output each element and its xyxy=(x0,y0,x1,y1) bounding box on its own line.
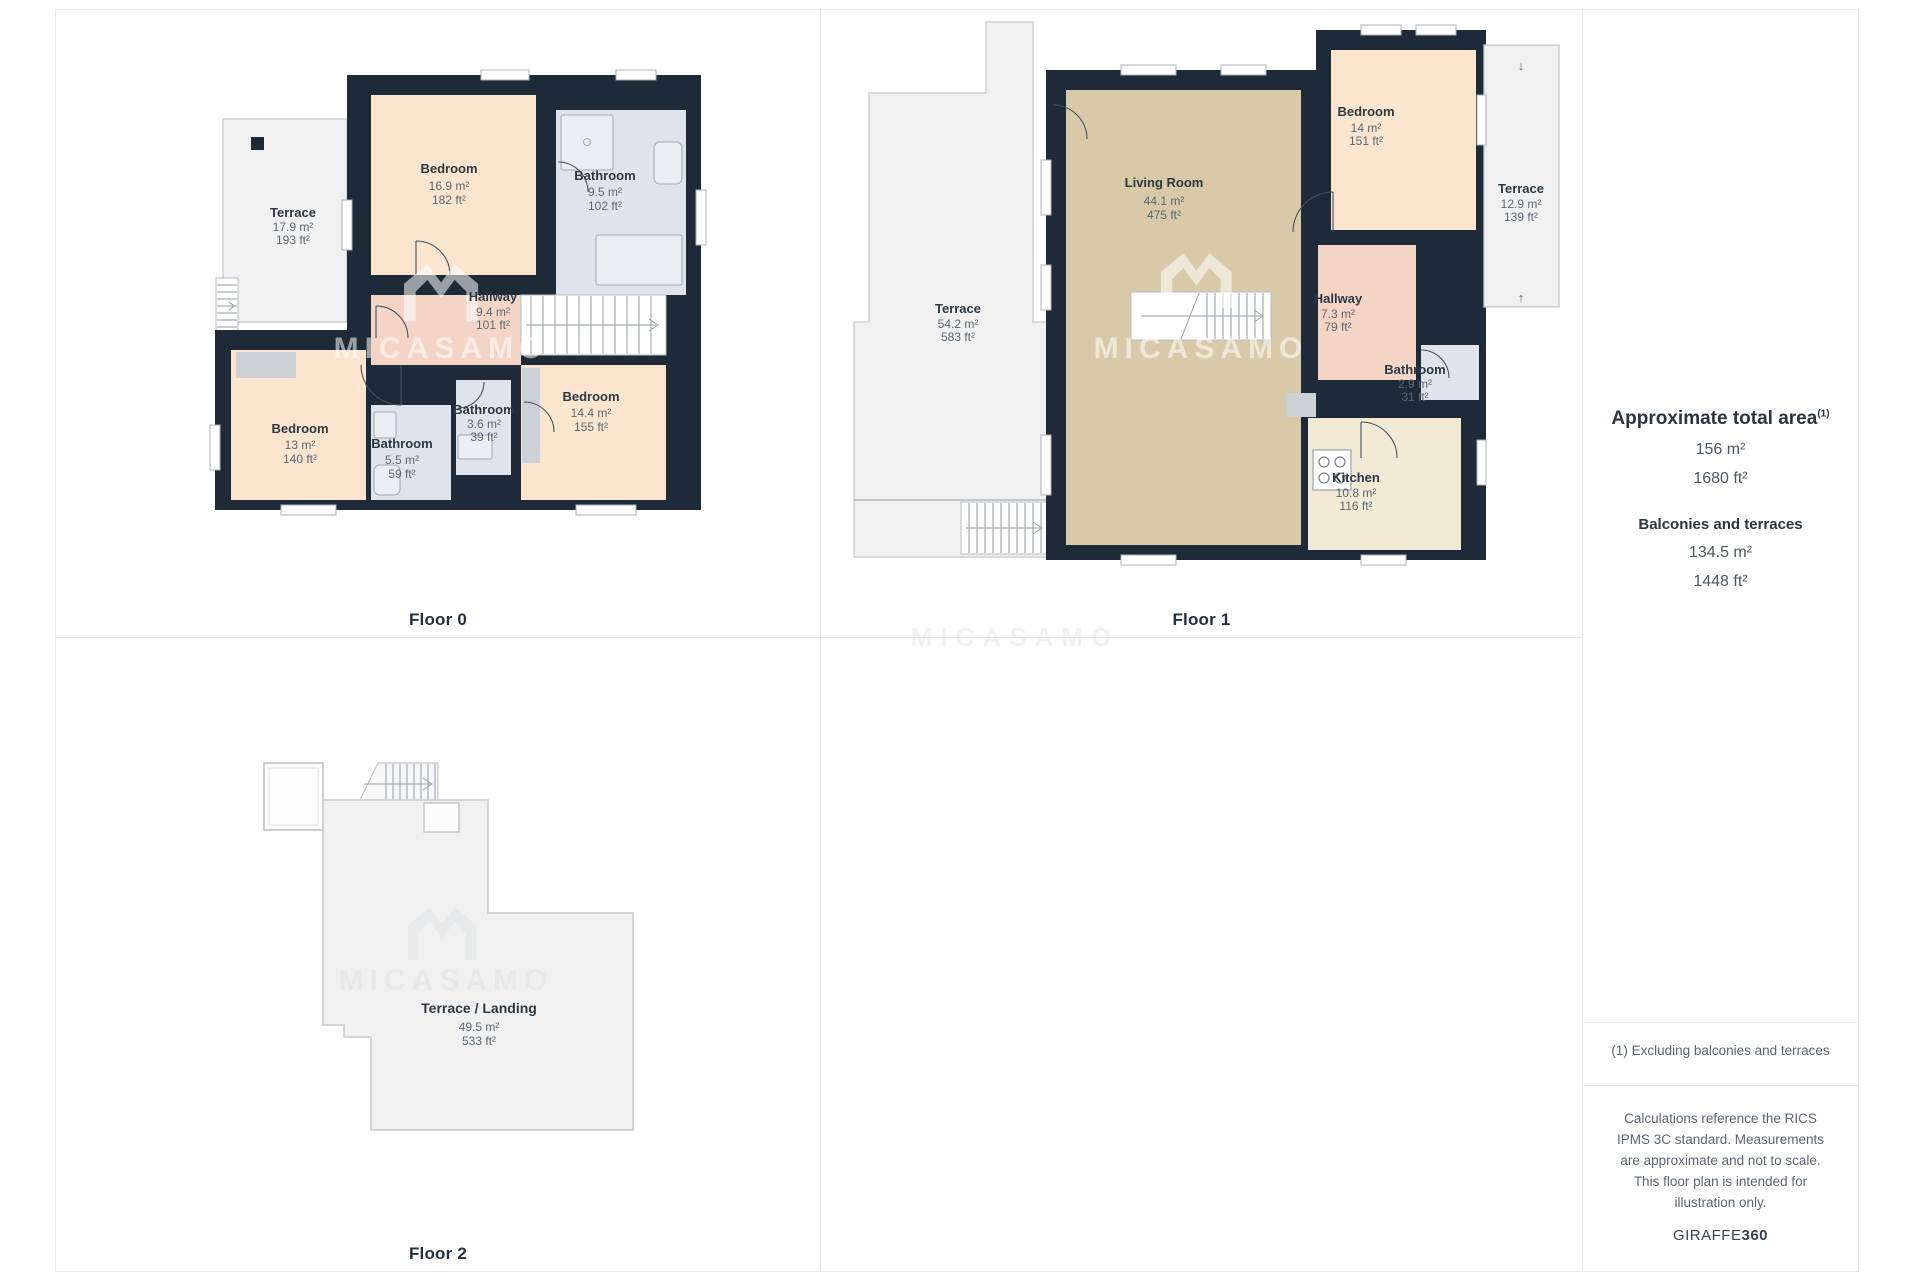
room-name: Bathroom xyxy=(371,436,432,451)
arrow-up-icon: ↑ xyxy=(1518,290,1525,305)
room-name: Bedroom xyxy=(271,421,328,436)
room-area: 10.8 m² xyxy=(1336,486,1377,500)
room-area: 182 ft² xyxy=(432,193,466,207)
room-area: 583 ft² xyxy=(941,330,975,344)
room-area: 151 ft² xyxy=(1349,134,1383,148)
window xyxy=(1041,435,1051,495)
room-area: 533 ft² xyxy=(462,1034,496,1048)
total-area-superscript: (1) xyxy=(1817,409,1829,420)
room-area: 17.9 m² xyxy=(273,220,314,234)
room-name: Bathroom xyxy=(453,402,514,417)
arrow-down-icon: ↓ xyxy=(1518,58,1525,73)
room-name: Bathroom xyxy=(574,168,635,183)
room-area: 39 ft² xyxy=(470,430,497,444)
watermark-text: MICASAMO xyxy=(1094,332,1309,365)
floor1-cell: ↓ ↑ xyxy=(821,10,1582,637)
total-area-m2: 156 m² xyxy=(1583,441,1858,459)
summary-sidebar: Approximate total area(1) 156 m² 1680 ft… xyxy=(1583,10,1858,1271)
footnote: (1) Excluding balconies and terraces xyxy=(1583,1043,1858,1058)
sidebar-divider-2 xyxy=(1583,1085,1858,1086)
floorplan-sheet: MICASAMO xyxy=(0,0,1920,1280)
window xyxy=(576,505,636,515)
room-area: 2.9 m² xyxy=(1398,377,1432,391)
room-area: 101 ft² xyxy=(476,318,510,332)
room-area: 3.6 m² xyxy=(467,417,501,431)
room-area: 14 m² xyxy=(1351,121,1382,135)
closet xyxy=(236,352,296,378)
room-area: 79 ft² xyxy=(1324,320,1351,334)
window xyxy=(481,70,529,80)
room-area: 31 ft² xyxy=(1401,390,1428,404)
watermark-text: MICASAMO xyxy=(334,332,549,365)
room-area: 102 ft² xyxy=(588,199,622,213)
room-area: 13 m² xyxy=(285,438,316,452)
terrace-post xyxy=(251,137,264,150)
balconies-ft2: 1448 ft² xyxy=(1583,573,1858,591)
room-area: 116 ft² xyxy=(1339,499,1372,513)
floor2-cell: MICASAMO Terrace / Landing 49.5 m² 533 f… xyxy=(56,638,820,1271)
total-area-block: Approximate total area(1) 156 m² 1680 ft… xyxy=(1583,408,1858,591)
giraffe-360-text: 360 xyxy=(1741,1227,1768,1244)
window xyxy=(616,70,656,80)
window xyxy=(1477,440,1486,485)
room-name: Bathroom xyxy=(1384,362,1445,377)
room-area: 9.5 m² xyxy=(588,185,622,199)
room-area: 475 ft² xyxy=(1147,208,1181,222)
floor1-terrace-large xyxy=(854,22,1061,557)
window xyxy=(1416,25,1456,35)
room-area: 7.3 m² xyxy=(1321,307,1355,321)
window xyxy=(210,425,220,470)
room-area: 59 ft² xyxy=(388,467,415,481)
room-area: 140 ft² xyxy=(283,452,317,466)
total-area-title: Approximate total area(1) xyxy=(1583,408,1858,430)
window xyxy=(281,505,336,515)
balconies-title: Balconies and terraces xyxy=(1583,516,1858,533)
sidebar-divider-1 xyxy=(1583,1022,1858,1023)
closet xyxy=(522,368,540,463)
room-name: Hallway xyxy=(469,289,518,304)
window xyxy=(1361,555,1406,565)
room-name: Living Room xyxy=(1125,175,1204,190)
window xyxy=(1477,95,1486,145)
floor1-label: Floor 1 xyxy=(821,610,1582,630)
room-area: 44.1 m² xyxy=(1144,194,1185,208)
floor2-stairs xyxy=(358,763,438,804)
room-name: Kitchen xyxy=(1332,470,1380,485)
window xyxy=(1361,25,1401,35)
room-area: 54.2 m² xyxy=(938,317,979,331)
room-area: 9.4 m² xyxy=(476,305,510,319)
disclaimer: Calculations reference the RICS IPMS 3C … xyxy=(1583,1108,1858,1213)
total-area-ft2: 1680 ft² xyxy=(1583,470,1858,488)
room-name: Terrace / Landing xyxy=(421,1000,537,1016)
window xyxy=(1121,555,1176,565)
room-name: Bedroom xyxy=(562,389,619,404)
window xyxy=(696,190,706,245)
window xyxy=(1041,160,1051,215)
giraffe360-logo: GIRAFFE360 xyxy=(1583,1227,1858,1244)
room-area: 16.9 m² xyxy=(429,179,470,193)
terrace-stairs xyxy=(961,502,1049,554)
room-area: 12.9 m² xyxy=(1501,197,1542,211)
window xyxy=(1041,265,1051,310)
room-name: Hallway xyxy=(1314,291,1363,306)
room-area: 49.5 m² xyxy=(459,1020,500,1034)
window xyxy=(1221,65,1266,75)
floor0-label: Floor 0 xyxy=(56,610,820,630)
floor2-plan: MICASAMO Terrace / Landing 49.5 m² 533 f… xyxy=(56,638,820,1271)
floor2-label: Floor 2 xyxy=(56,1244,820,1264)
closet xyxy=(1286,393,1316,417)
room-name: Terrace xyxy=(270,205,316,220)
room-name: Bedroom xyxy=(1337,104,1394,119)
balconies-m2: 134.5 m² xyxy=(1583,544,1858,562)
room-area: 5.5 m² xyxy=(385,453,419,467)
floor2-courtyard xyxy=(264,763,323,830)
watermark-text: MICASAMO xyxy=(339,964,554,997)
room-area: 139 ft² xyxy=(1504,210,1538,224)
floor0-plan: MICASAMO Terrace 17.9 m² 193 ft² Bedroom… xyxy=(56,10,820,637)
giraffe-text: GIRAFFE xyxy=(1673,1227,1742,1244)
room-area: 155 ft² xyxy=(574,420,608,434)
floor1-plan: ↓ ↑ xyxy=(821,10,1582,637)
window xyxy=(342,200,352,250)
room-name: Terrace xyxy=(935,301,981,316)
floor1-terrace-small: ↓ ↑ xyxy=(1484,45,1559,307)
window xyxy=(1121,65,1176,75)
room-area: 14.4 m² xyxy=(571,406,612,420)
exterior-stairs xyxy=(216,278,238,334)
room-name: Terrace xyxy=(1498,181,1544,196)
total-area-title-text: Approximate total area xyxy=(1611,408,1817,429)
room-name: Bedroom xyxy=(420,161,477,176)
floor0-cell: MICASAMO Terrace 17.9 m² 193 ft² Bedroom… xyxy=(56,10,820,637)
roof-opening xyxy=(424,803,459,832)
room-area: 193 ft² xyxy=(276,233,310,247)
